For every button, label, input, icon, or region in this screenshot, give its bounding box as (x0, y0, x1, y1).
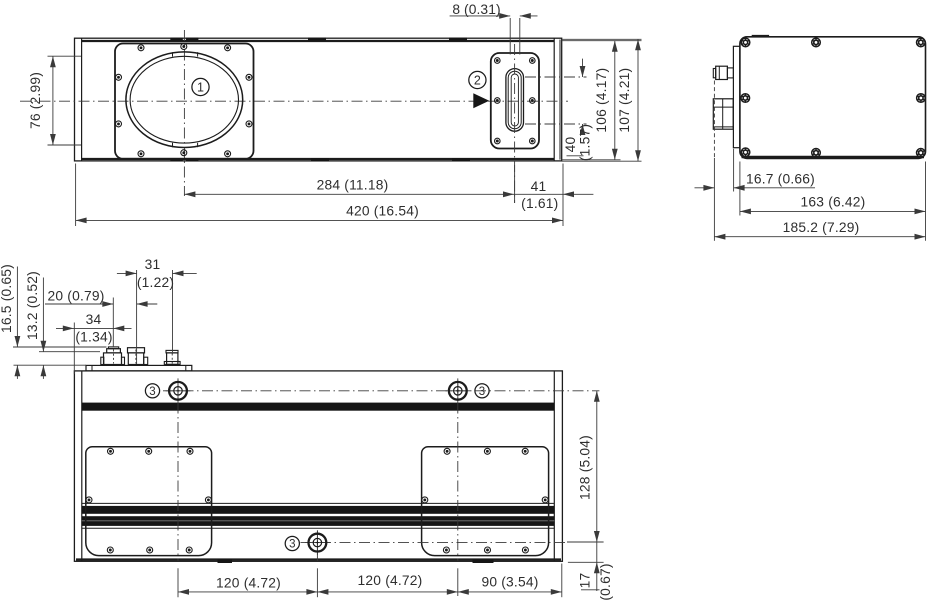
svg-text:40: 40 (563, 137, 578, 153)
svg-text:(1.22): (1.22) (137, 275, 174, 290)
svg-text:16.7 (0.66): 16.7 (0.66) (746, 171, 815, 186)
svg-text:16.5 (0.65): 16.5 (0.65) (0, 264, 14, 333)
svg-text:13.2 (0.52): 13.2 (0.52) (25, 271, 40, 340)
svg-text:34: 34 (86, 312, 102, 327)
svg-text:90 (3.54): 90 (3.54) (481, 575, 538, 590)
svg-text:120 (4.72): 120 (4.72) (358, 573, 423, 588)
svg-text:(1.61): (1.61) (521, 196, 558, 211)
svg-text:8 (0.31): 8 (0.31) (452, 2, 500, 17)
svg-text:31: 31 (145, 257, 161, 272)
svg-text:76 (2.99): 76 (2.99) (28, 72, 43, 129)
svg-text:3: 3 (289, 539, 295, 551)
svg-text:41: 41 (531, 179, 547, 194)
svg-text:3: 3 (149, 386, 155, 398)
svg-text:107 (4.21): 107 (4.21) (617, 68, 632, 133)
svg-text:20 (0.79): 20 (0.79) (48, 289, 105, 304)
svg-text:128 (5.04): 128 (5.04) (578, 435, 593, 500)
svg-text:106 (4.17): 106 (4.17) (594, 68, 609, 133)
svg-text:163 (6.42): 163 (6.42) (801, 195, 866, 210)
svg-text:(0.67): (0.67) (598, 563, 613, 600)
svg-text:185.2 (7.29): 185.2 (7.29) (783, 220, 860, 235)
svg-text:120 (4.72): 120 (4.72) (216, 575, 281, 590)
svg-text:1: 1 (197, 80, 204, 94)
svg-text:2: 2 (474, 73, 481, 87)
svg-text:3: 3 (479, 386, 485, 398)
svg-text:420 (16.54): 420 (16.54) (346, 204, 419, 219)
svg-text:17: 17 (578, 573, 593, 589)
svg-text:(1.34): (1.34) (75, 330, 112, 345)
svg-text:284 (11.18): 284 (11.18) (317, 177, 389, 192)
